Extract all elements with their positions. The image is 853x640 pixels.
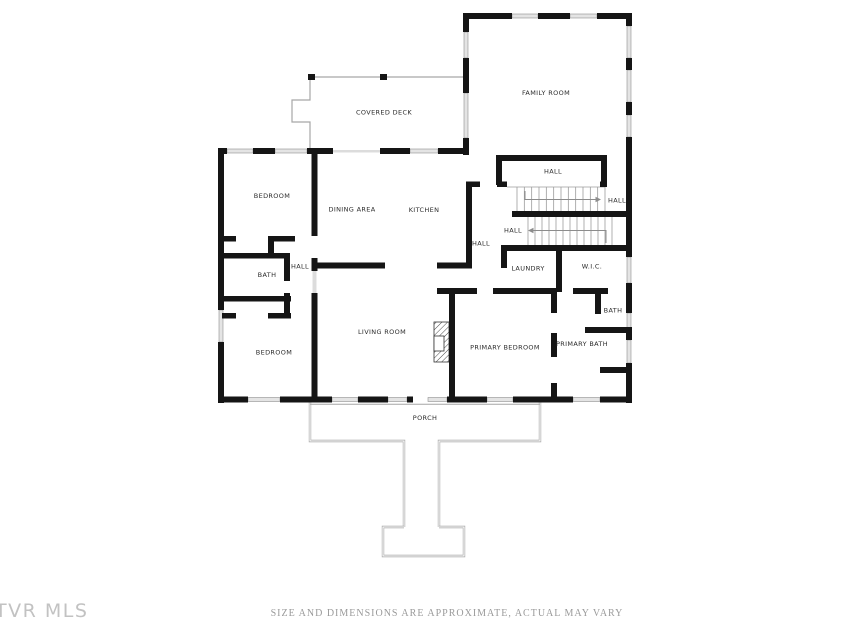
wall (551, 294, 557, 313)
wall (437, 263, 472, 269)
room-label-porch: PORCH (413, 414, 437, 422)
window (573, 398, 600, 402)
wall (538, 13, 570, 19)
wall (268, 313, 291, 319)
window (388, 398, 407, 402)
wall (218, 148, 224, 310)
wall (600, 367, 632, 373)
wall (601, 161, 607, 185)
wall (626, 58, 632, 70)
room-label-hall-stairs-up: HALL (608, 197, 626, 205)
room-label-bath-left: BATH (258, 271, 277, 279)
disclaimer-text: SIZE AND DIMENSIONS ARE APPROXIMATE, ACT… (271, 608, 624, 619)
wall (496, 155, 607, 161)
window (627, 70, 631, 102)
wall (626, 102, 632, 115)
room-label-dining-area: DINING AREA (328, 206, 375, 214)
wall (466, 182, 480, 188)
room-label-wic: W.I.C. (582, 263, 602, 271)
wall (595, 294, 601, 314)
wall (496, 161, 502, 185)
wall (280, 397, 332, 403)
wall (626, 137, 632, 257)
room-label-primary-bath: PRIMARY BATH (556, 340, 608, 348)
room-label-laundry: LAUNDRY (511, 265, 544, 273)
window (512, 14, 538, 18)
window (275, 149, 307, 153)
wall (218, 397, 248, 403)
stair-arrow-head (596, 197, 602, 202)
wall (512, 211, 632, 217)
window (332, 398, 358, 402)
wall (573, 288, 608, 294)
wall (463, 13, 512, 19)
wall (222, 313, 236, 319)
wall (437, 288, 477, 294)
porch-outline-inner (439, 403, 540, 528)
deck-post (380, 74, 387, 80)
window (627, 257, 631, 283)
deck-post (308, 74, 315, 80)
window (428, 398, 447, 402)
fireplace-firebox (434, 336, 444, 351)
wall (253, 148, 275, 154)
room-label-hall-upper: HALL (544, 168, 562, 176)
wall (513, 397, 573, 403)
window (410, 149, 438, 153)
wall (447, 397, 487, 403)
wall (218, 148, 227, 154)
wall (551, 383, 557, 397)
room-label-bath-right: BATH (604, 307, 623, 315)
window (464, 93, 468, 138)
porch-outline (383, 527, 464, 556)
wall-opening (313, 271, 317, 293)
wall (284, 253, 290, 281)
window (487, 398, 513, 402)
wall (224, 253, 290, 259)
room-label-hall-center: HALL (472, 240, 490, 248)
wall (463, 58, 469, 93)
wall (449, 294, 455, 397)
stair-arrow-head (528, 228, 534, 233)
wall (585, 327, 632, 333)
porch-outline (439, 403, 540, 528)
wall (463, 13, 469, 32)
wall (222, 296, 291, 302)
wall (380, 148, 410, 154)
wall (218, 342, 224, 403)
room-label-living-room: LIVING ROOM (358, 328, 406, 336)
porch-outline-inner (310, 403, 404, 528)
wall (463, 138, 469, 155)
wall (597, 13, 632, 19)
room-label-bedroom-1: BEDROOM (254, 192, 290, 200)
window (570, 14, 597, 18)
watermark: TVR MLS (0, 600, 88, 622)
room-label-hall-left: HALL (291, 263, 309, 271)
wall (466, 185, 472, 263)
wall (501, 251, 507, 268)
room-label-hall-stairs-down: HALL (504, 227, 522, 235)
wall (312, 154, 318, 236)
window (248, 398, 280, 402)
wall-opening (333, 150, 380, 153)
room-label-primary-bedroom: PRIMARY BEDROOM (470, 344, 540, 352)
wall (313, 263, 385, 269)
wall (407, 397, 413, 403)
floorplan-image: SIZE AND DIMENSIONS ARE APPROXIMATE, ACT… (0, 0, 853, 640)
porch-outline-inner (383, 527, 464, 556)
wall (556, 251, 562, 292)
floorplan-svg: SIZE AND DIMENSIONS ARE APPROXIMATE, ACT… (0, 0, 853, 640)
wall (501, 245, 632, 251)
room-label-family-room: FAMILY ROOM (522, 89, 570, 97)
wall (307, 148, 333, 154)
room-label-covered-deck: COVERED DECK (356, 109, 412, 117)
wall (312, 293, 318, 397)
window (627, 115, 631, 137)
window (464, 32, 468, 58)
wall (493, 288, 557, 294)
wall (626, 283, 632, 313)
porch-outline (310, 403, 404, 528)
room-label-bedroom-2: BEDROOM (256, 349, 292, 357)
window (627, 340, 631, 363)
wall (358, 397, 388, 403)
window (627, 26, 631, 58)
wall (224, 236, 236, 242)
window (227, 149, 253, 153)
room-label-kitchen: KITCHEN (409, 206, 440, 214)
